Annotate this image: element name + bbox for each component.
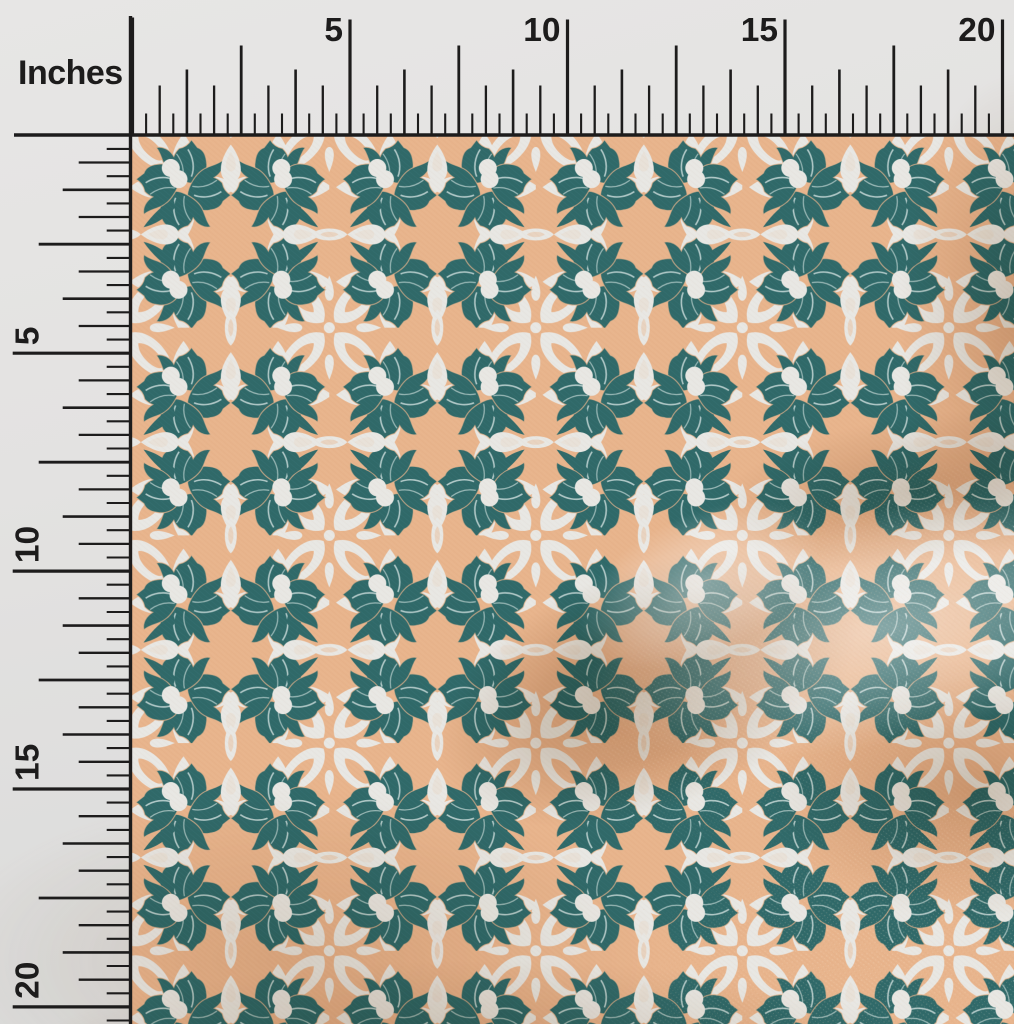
svg-text:20: 20 [10,962,47,999]
svg-text:15: 15 [10,744,47,781]
svg-text:20: 20 [958,12,995,49]
svg-text:5: 5 [10,327,47,346]
svg-text:5: 5 [324,12,343,49]
svg-text:10: 10 [523,12,560,49]
svg-text:Inches: Inches [18,54,123,92]
svg-text:15: 15 [741,12,778,49]
svg-text:10: 10 [10,526,47,563]
